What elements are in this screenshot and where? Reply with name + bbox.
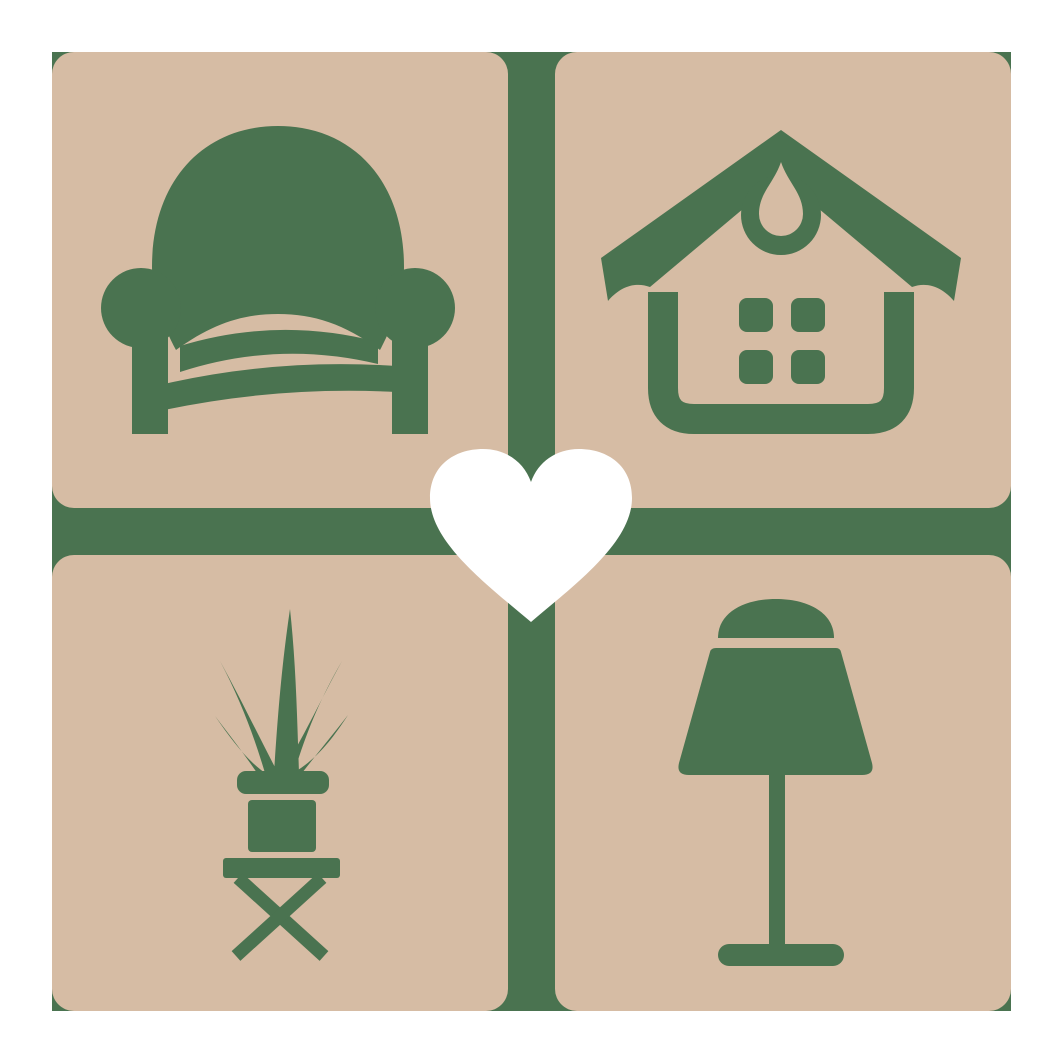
heart-shape — [430, 449, 632, 622]
tile-armchair — [52, 52, 508, 508]
plant-leaf-center — [274, 609, 299, 773]
lamp-base — [718, 944, 844, 966]
armchair-right-leg — [392, 302, 428, 434]
house-window-pane — [739, 350, 773, 384]
house-icon — [555, 52, 1011, 508]
house-window-pane — [791, 350, 825, 384]
armchair-rail — [164, 364, 396, 410]
stool-top — [223, 858, 340, 878]
lamp-cap — [718, 599, 834, 638]
armchair-icon — [52, 52, 508, 508]
plant-pot-body — [248, 800, 316, 852]
house-window-pane — [739, 298, 773, 332]
house-window-pane — [791, 298, 825, 332]
logo — [0, 0, 1063, 1063]
house-walls — [663, 292, 899, 419]
plant-pot-rim — [237, 771, 329, 794]
lamp-shade — [678, 648, 872, 775]
lamp-stem — [769, 775, 785, 944]
plant-leaf-upper-left — [220, 661, 278, 773]
armchair-back — [152, 126, 404, 350]
armchair-left-leg — [132, 302, 168, 434]
tile-house — [555, 52, 1011, 508]
heart-icon — [424, 446, 638, 624]
